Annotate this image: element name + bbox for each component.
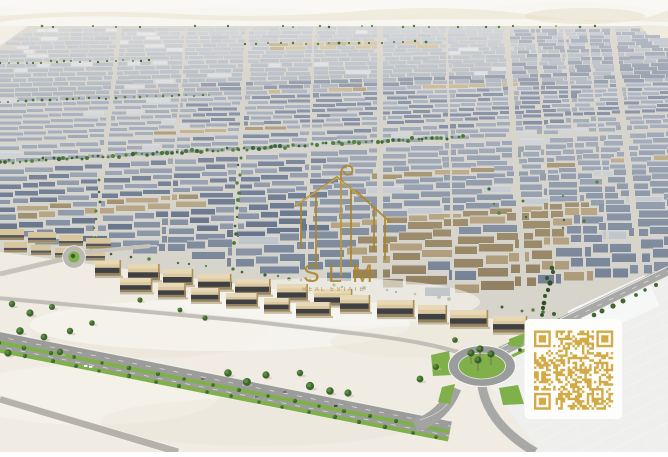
svg-text:REAL ESTATE: REAL ESTATE <box>302 287 366 293</box>
svg-text:S: S <box>303 260 320 288</box>
svg-text:M: M <box>352 260 373 288</box>
svg-text:L: L <box>328 260 342 288</box>
